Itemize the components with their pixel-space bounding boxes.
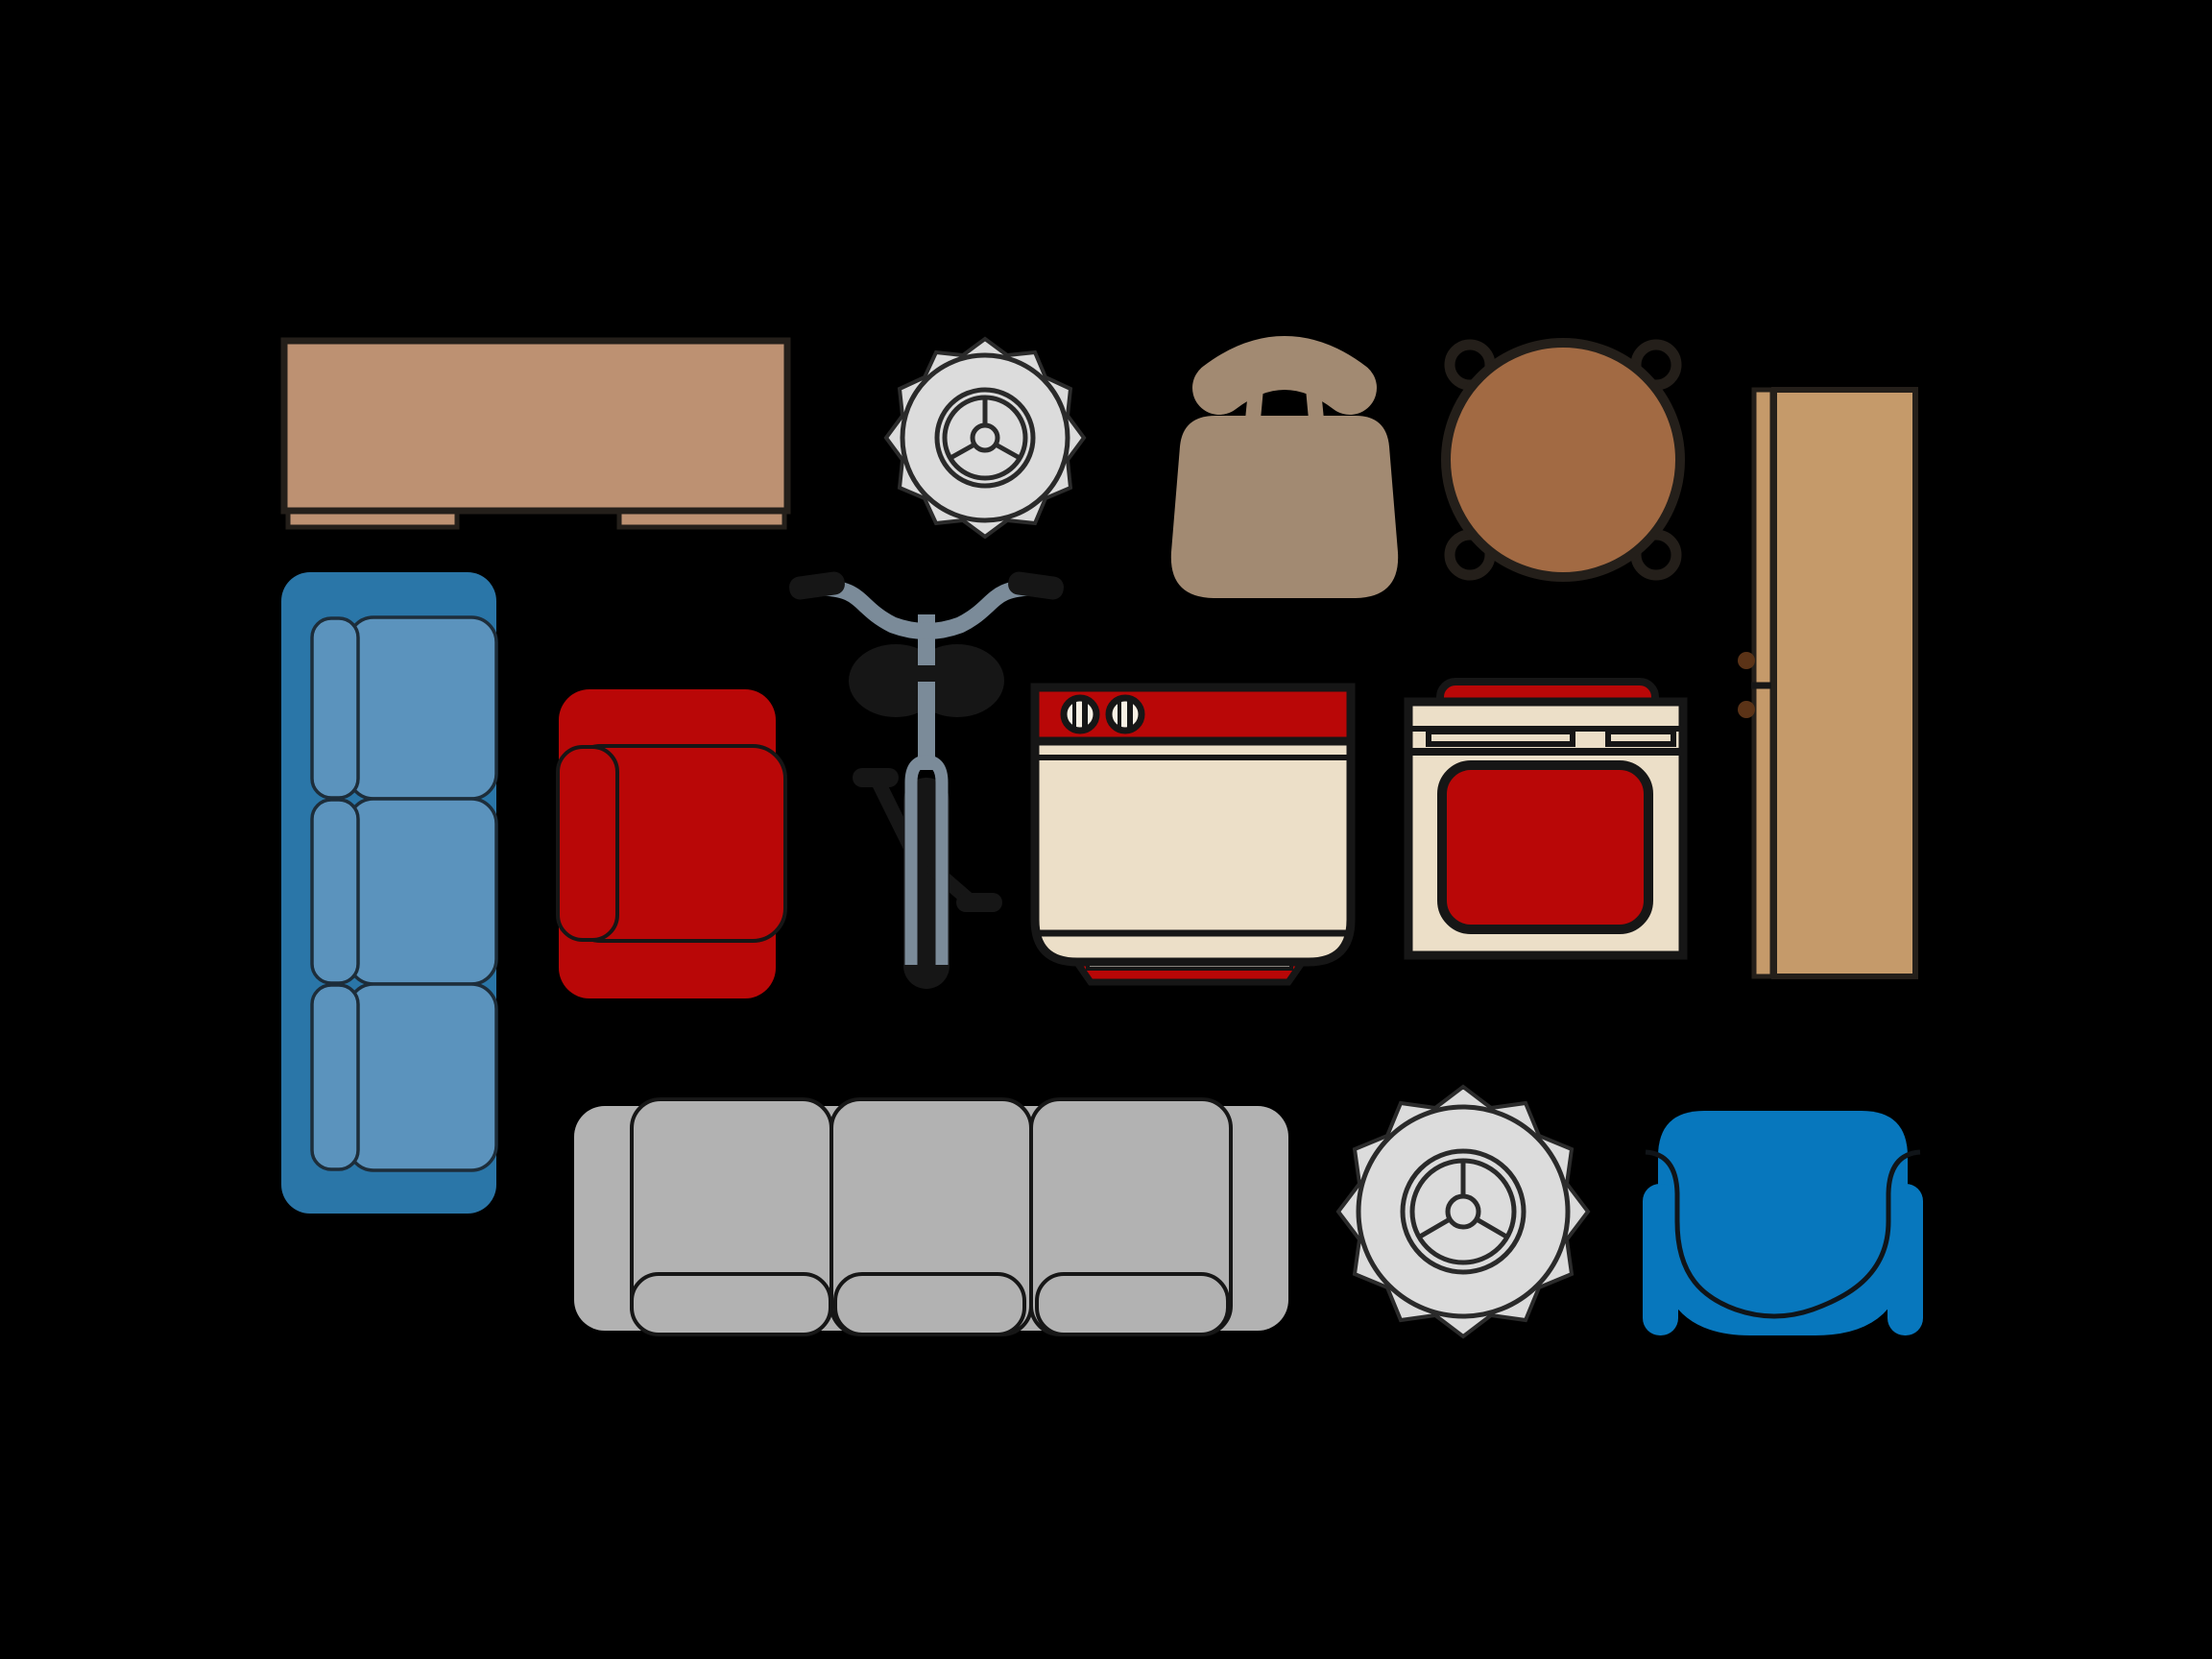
bike-handlebar [818,588,1035,632]
blue-sofa-back-2 [312,800,358,983]
blue-sofa-seat-3 [349,984,496,1170]
bike-seat-clamp [910,665,943,682]
tub-chair-arm-left [1643,1184,1678,1335]
wardrobe-handle-bottom [1738,701,1755,718]
potted-plant-1 [886,339,1084,537]
wardrobe-handle-top [1738,652,1755,669]
washer-dial-left [1064,698,1096,731]
wardrobe [1738,390,1915,976]
wardrobe-body [1774,390,1915,976]
stove-oven-door [1442,765,1648,929]
round-table-top [1446,343,1680,577]
chair-seat [1171,416,1398,598]
dining-chair [1171,363,1398,598]
blue-sofa-back-3 [312,985,358,1169]
round-table-with-chairs [1446,343,1680,577]
gray-sofa-seat-roll-3 [1037,1274,1228,1334]
potted-plant-2 [1338,1087,1588,1336]
sideboard-table [284,341,787,527]
red-armchair [558,689,785,998]
stove-oven [1408,682,1683,955]
gray-sofa-seat-roll-1 [632,1274,830,1334]
blue-tub-chair [1643,1111,1923,1335]
plant-hub [1448,1196,1479,1227]
stove-control-slot-short [1608,732,1673,744]
sideboard-body [284,341,787,511]
washer-dial-right [1109,698,1142,731]
blue-sofa-seat-2 [349,799,496,984]
washing-machine [1035,687,1351,982]
chair-backrest [1219,363,1350,388]
tub-chair-back [1658,1111,1908,1335]
bike-pedal-left [853,768,899,787]
illustration-canvas [0,0,2212,1659]
furniture-icon-sheet [0,0,2212,1659]
blue-sofa-seat-1 [349,617,496,799]
gray-sofa [574,1099,1288,1334]
tub-chair-arm-right [1887,1184,1923,1335]
bike-pedal-right [956,893,1002,912]
bicycle [788,570,1066,989]
red-armchair-back-cushion [558,747,617,940]
blue-sofa-back-1 [312,618,358,798]
blue-sofa [281,572,496,1214]
plant-hub [973,425,998,450]
stove-control-slot-long [1429,732,1573,744]
gray-sofa-seat-roll-2 [835,1274,1024,1334]
